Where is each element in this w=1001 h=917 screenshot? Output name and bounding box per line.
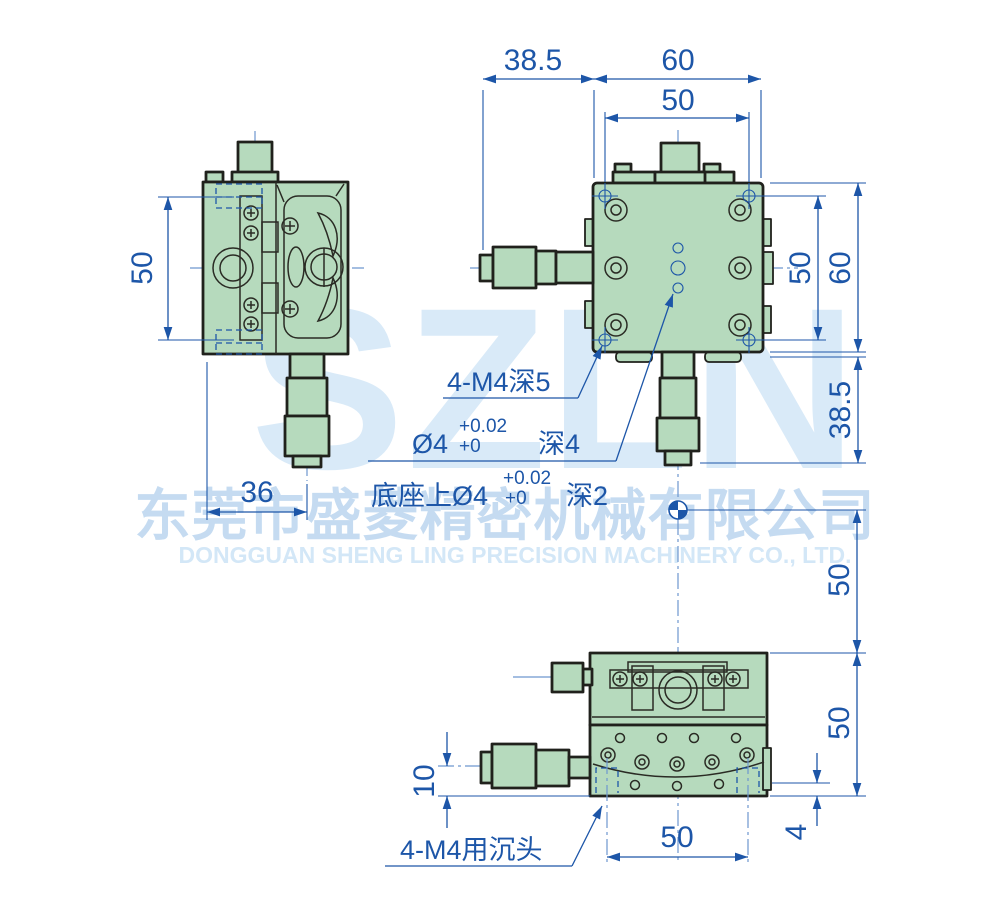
front-dim-holes: 50 [607, 821, 748, 857]
front-mic-cap [481, 752, 492, 783]
front-right-step [763, 748, 771, 790]
technical-drawing-canvas: SZLN 东莞市盛菱精密机械有限公司 DONGGUAN SHENG LING P… [0, 0, 1001, 917]
side-top-tab [206, 172, 223, 182]
top-knob-base [655, 172, 705, 183]
top-mic2-shaft [662, 352, 694, 378]
note-center-depth: 深4 [538, 429, 580, 459]
note-base-dia: 底座上Ø4 [371, 481, 488, 511]
side-mic-knurl [285, 416, 329, 456]
front-dim-lower-label: 50 [823, 706, 856, 739]
front-mic-knurl [492, 744, 536, 788]
top-mic2-tip [665, 451, 691, 465]
front-upper-body [590, 653, 767, 725]
note-base-depth: 深2 [566, 481, 608, 511]
front-dim-axis-label: 10 [408, 764, 441, 797]
side-mic-barrel [287, 378, 327, 416]
top-dim-offset-bottom-label: 38.5 [824, 381, 857, 439]
front-dim-hole-height-label: 4 [780, 824, 813, 841]
note-corner-holes-label: 4-M4深5 [447, 367, 551, 397]
front-dim-holes-label: 50 [660, 821, 693, 854]
front-dim-hole-height: 4 [772, 753, 830, 840]
note-center-tol-low: +0 [459, 436, 481, 457]
top-right-tab [763, 252, 773, 284]
side-knob-base [232, 172, 278, 182]
note-base-tol-up: +0.02 [503, 468, 551, 489]
note-center-dia: Ø4 [412, 429, 448, 459]
side-mic-shaft [290, 354, 324, 378]
top-mic2-barrel [660, 378, 696, 418]
note-center-tol-up: +0.02 [459, 416, 507, 437]
side-mic-tip [293, 456, 321, 467]
top-dim-holes-x-label: 50 [661, 84, 694, 117]
top-dim-width-label: 60 [661, 44, 694, 77]
top-dim-holes-y-label: 50 [784, 251, 817, 284]
note-base-tol-low: +0 [505, 488, 527, 509]
top-dim-height-label: 60 [824, 251, 857, 284]
top-bottom-bump-1 [616, 352, 652, 362]
stage-drawing: SZLN 东莞市盛菱精密机械有限公司 DONGGUAN SHENG LING P… [0, 0, 1001, 917]
front-knob [552, 663, 583, 692]
note-countersink-label: 4-M4用沉头 [400, 835, 543, 865]
side-dim-height-label: 50 [126, 251, 159, 284]
front-mic-shaft [569, 757, 590, 778]
watermark-company-en: DONGGUAN SHENG LING PRECISION MACHINERY … [179, 542, 852, 568]
side-dim-width-label: 36 [240, 476, 273, 509]
front-dim-upper-label: 50 [823, 563, 856, 596]
top-mic2-knurl [657, 418, 699, 451]
top-bottom-bump-2 [705, 352, 741, 362]
top-dim-offset-label: 38.5 [504, 44, 562, 77]
top-mic-barrel [536, 251, 556, 284]
top-mic-drum [556, 252, 593, 283]
top-mic-cap [480, 255, 493, 281]
top-tab-left [613, 172, 655, 183]
note-countersink: 4-M4用沉头 [385, 806, 602, 866]
top-body [593, 183, 763, 352]
top-mic-knurl [493, 247, 536, 288]
front-mic-barrel [536, 750, 569, 786]
